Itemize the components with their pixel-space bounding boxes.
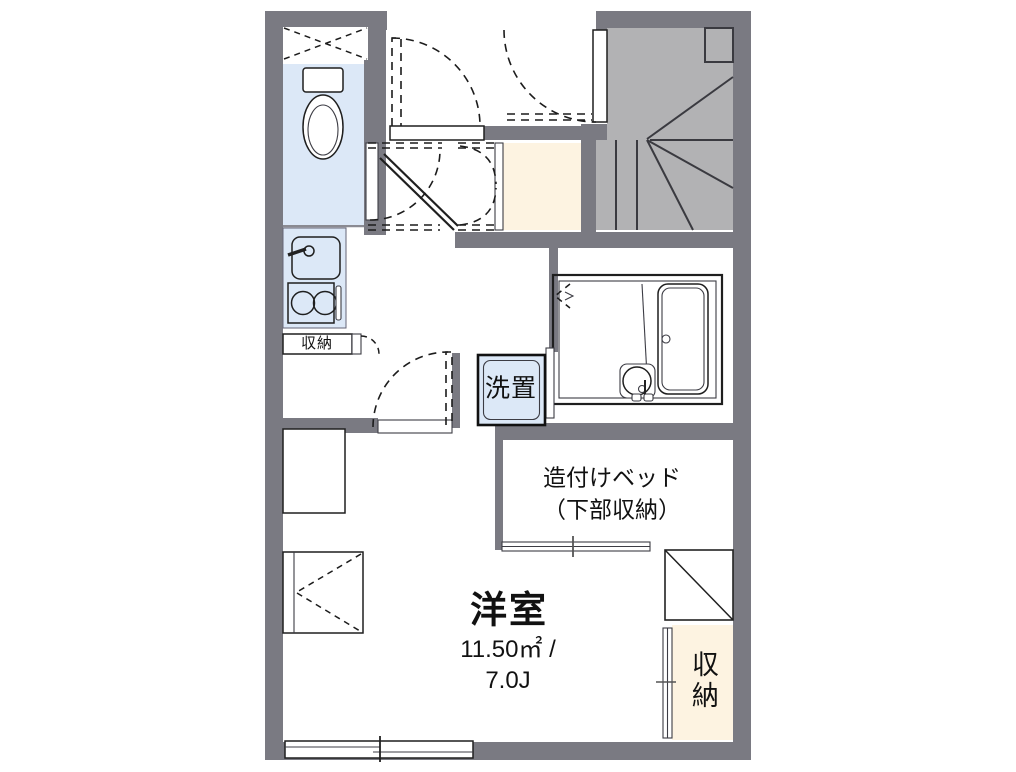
toilet-fixture	[303, 68, 343, 159]
genkan-door	[495, 143, 503, 230]
genkan-floor	[495, 143, 581, 230]
laundry-label: 洗置	[485, 375, 537, 403]
upper-closet	[283, 27, 368, 60]
bathroom	[546, 275, 722, 418]
floor-plan: 収納 洗置 造付けベッド （下部収納） 洋室 11.50㎡ / 7.0J 収納	[0, 0, 1016, 772]
stair-door	[593, 30, 607, 122]
toilet-room	[283, 27, 378, 225]
furniture-square	[283, 429, 345, 513]
closet-diagonal	[665, 550, 733, 620]
bed-label-line1: 造付けベッド	[543, 465, 681, 490]
wash-basin	[620, 364, 655, 401]
room-name-label: 洋室	[470, 591, 548, 632]
bed-label-line2: （下部収納）	[543, 497, 681, 522]
shoe-closet-doors	[368, 143, 497, 230]
bathroom-door	[546, 348, 554, 418]
entrance-door-swing	[390, 38, 484, 140]
staircase	[593, 28, 733, 230]
kitchen-storage-label: 収納	[301, 336, 333, 353]
bed-sliding-door	[502, 536, 650, 557]
entrance-threshold	[390, 126, 484, 140]
living-room	[283, 352, 473, 762]
main-closet-label: 収納	[687, 650, 717, 712]
toilet-door	[366, 143, 378, 220]
bathtub	[658, 284, 708, 394]
kitchen-storage-door	[352, 334, 361, 354]
living-door	[373, 352, 452, 433]
room-size-label: 7.0J	[485, 668, 530, 694]
porch-door-swing	[504, 30, 596, 122]
bed-area	[502, 536, 650, 557]
room-area-label: 11.50㎡ /	[460, 637, 556, 663]
window	[285, 736, 473, 762]
sliding-partition	[380, 158, 454, 230]
desk-square	[283, 552, 363, 633]
kitchen-unit	[283, 228, 346, 328]
